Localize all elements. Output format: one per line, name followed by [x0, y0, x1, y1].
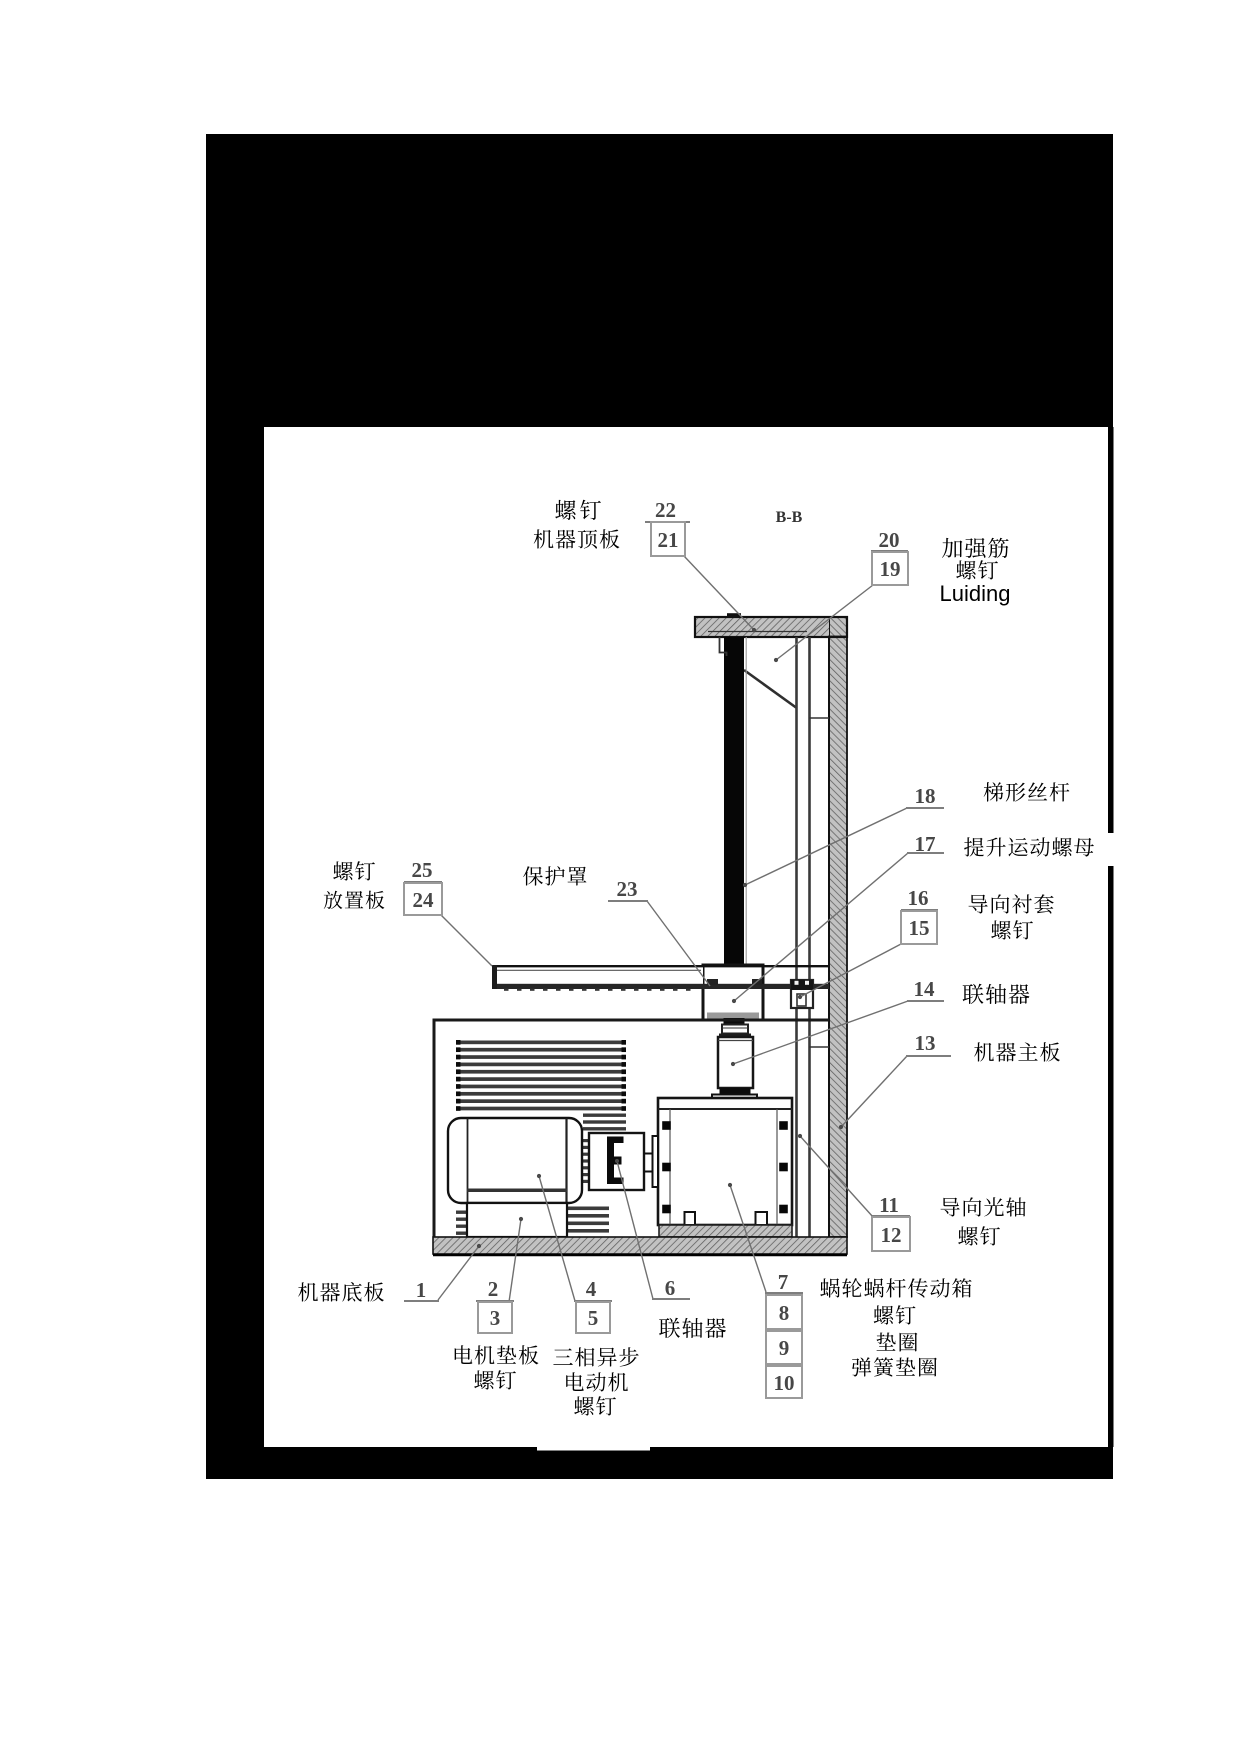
svg-text:10: 10 [774, 1371, 795, 1395]
svg-text:16: 16 [908, 886, 929, 910]
svg-text:13: 13 [915, 1031, 936, 1055]
svg-text:7: 7 [778, 1270, 789, 1294]
svg-text:3: 3 [490, 1306, 501, 1330]
svg-text:21: 21 [658, 528, 679, 552]
svg-text:23: 23 [617, 877, 638, 901]
svg-text:19: 19 [880, 557, 901, 581]
svg-text:2: 2 [488, 1277, 499, 1301]
svg-text:24: 24 [413, 888, 435, 912]
svg-text:25: 25 [412, 858, 433, 882]
svg-text:11: 11 [879, 1193, 899, 1217]
svg-text:14: 14 [914, 977, 936, 1001]
svg-text:1: 1 [416, 1278, 427, 1302]
svg-text:22: 22 [655, 498, 676, 522]
svg-text:4: 4 [586, 1277, 597, 1301]
svg-text:5: 5 [588, 1306, 599, 1330]
svg-text:20: 20 [879, 528, 900, 552]
svg-text:12: 12 [881, 1223, 902, 1247]
svg-text:B-B: B-B [776, 509, 803, 526]
svg-text:Luiding: Luiding [940, 581, 1011, 606]
svg-text:15: 15 [909, 916, 930, 940]
svg-text:8: 8 [779, 1301, 790, 1325]
svg-text:18: 18 [915, 784, 936, 808]
svg-text:6: 6 [665, 1276, 676, 1300]
svg-text:9: 9 [779, 1336, 790, 1360]
